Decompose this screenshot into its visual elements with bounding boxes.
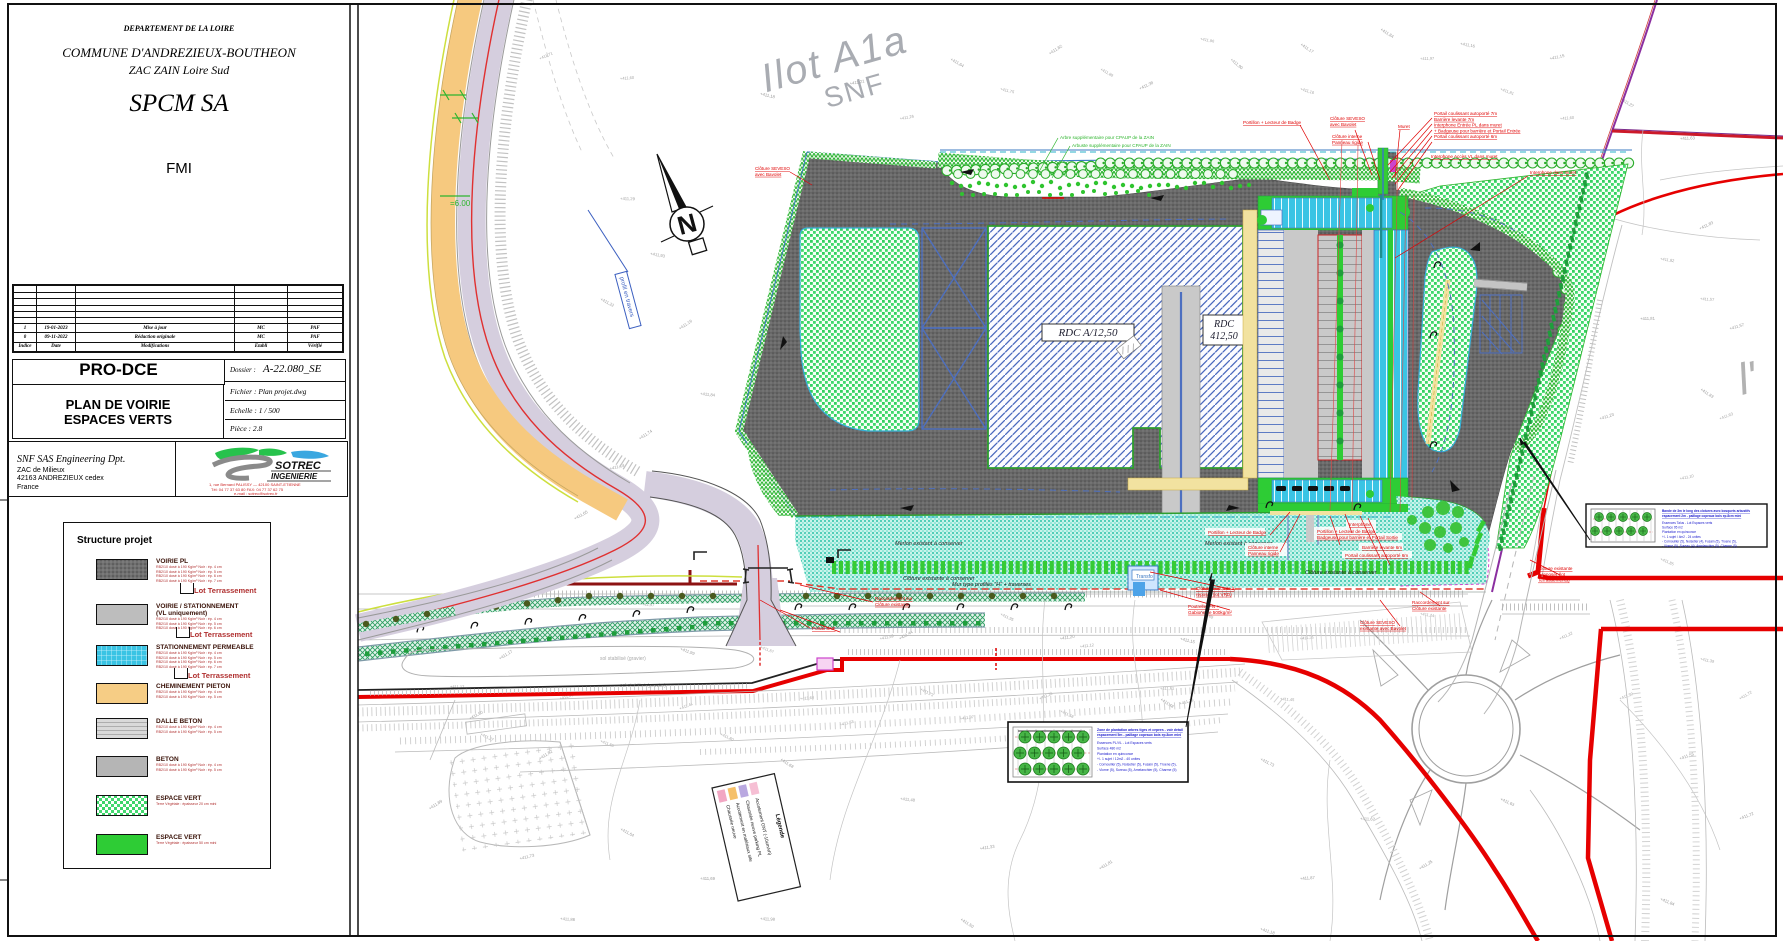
svg-text:+411,71: +411,71 xyxy=(538,50,554,61)
svg-text:Terrassements): Terrassements) xyxy=(1538,578,1570,583)
svg-text:+411,25: +411,25 xyxy=(1418,859,1434,871)
svg-text:+411,63: +411,63 xyxy=(1500,796,1516,807)
svg-text:Badgeuse pour barrière et Port: Badgeuse pour barrière et Portail Sortie xyxy=(1317,535,1398,540)
svg-text:SOTREC: SOTREC xyxy=(275,460,322,472)
svg-text:+411,89: +411,89 xyxy=(428,798,444,811)
svg-text:Barrière levante 7m: Barrière levante 7m xyxy=(1434,117,1474,122)
svg-text:+411,29: +411,29 xyxy=(1179,697,1195,706)
svg-text:+411,87: +411,87 xyxy=(1300,875,1316,881)
svg-text:+411,57: +411,57 xyxy=(1700,296,1715,302)
svg-text:+411,48: +411,48 xyxy=(900,796,916,803)
svg-text:Clôture existante: Clôture existante xyxy=(875,602,910,607)
svg-text:+411,69: +411,69 xyxy=(700,876,716,881)
svg-text:+411,20: +411,20 xyxy=(1059,634,1075,641)
svg-text:Transfo: Transfo xyxy=(1136,574,1153,580)
svg-text:+411,63: +411,63 xyxy=(839,719,855,727)
svg-text:+411,32: +411,32 xyxy=(1558,630,1574,641)
svg-text:Portillon + Lecteur de Badge: Portillon + Lecteur de Badge xyxy=(1243,120,1302,125)
svg-text:Surface 95 m2: Surface 95 m2 xyxy=(1662,526,1683,530)
svg-text:Raccordement sur: Raccordement sur xyxy=(1412,600,1450,605)
svg-text:+411,90: +411,90 xyxy=(1229,57,1244,71)
svg-text:Poutrelle IPN +: Poutrelle IPN + xyxy=(1188,604,1219,609)
svg-text:espacement 5m - paillage copea: espacement 5m - paillage copeaux bois ep… xyxy=(1097,733,1181,737)
svg-text:+411,24: +411,24 xyxy=(1420,611,1436,618)
svg-text:+411,81: +411,81 xyxy=(1098,859,1114,871)
svg-text:Interphone Entrée PL dans mure: Interphone Entrée PL dans muret xyxy=(1434,123,1502,128)
svg-text:Interphone Accès VL dans muret: Interphone Accès VL dans muret xyxy=(1431,154,1498,159)
svg-text:+411,68: +411,68 xyxy=(779,757,795,770)
svg-text:+411,48: +411,48 xyxy=(1159,697,1175,710)
svg-text:Essences PL/VL - Lot Espaces v: Essences PL/VL - Lot Espaces verts xyxy=(1097,741,1152,745)
svg-text:+411,59: +411,59 xyxy=(879,633,895,641)
svg-text:+411,64: +411,64 xyxy=(620,826,636,838)
svg-text:Surface 480 m2: Surface 480 m2 xyxy=(1097,746,1121,750)
svg-text:RDC A/12,50: RDC A/12,50 xyxy=(1057,327,1118,339)
svg-text:INGENIERIE: INGENIERIE xyxy=(271,472,318,481)
svg-text:+411,73: +411,73 xyxy=(1260,756,1276,768)
svg-text:sol stabilisé (gravier): sol stabilisé (gravier) xyxy=(600,656,646,662)
svg-text:RDC: RDC xyxy=(1213,319,1234,330)
svg-text:+411,33: +411,33 xyxy=(979,844,995,851)
svg-text:+411,82: +411,82 xyxy=(1048,43,1064,56)
svg-text:+411,27: +411,27 xyxy=(480,731,496,742)
svg-text:- Cornouiller (5), Noisetier (: - Cornouiller (5), Noisetier (4), Fusain… xyxy=(1662,539,1737,543)
svg-text:+411,86: +411,86 xyxy=(560,916,576,922)
svg-text:+411,63: +411,63 xyxy=(1680,135,1696,141)
svg-text:+411,97: +411,97 xyxy=(959,714,975,721)
svg-text:Gabions de 500kg/m²: Gabions de 500kg/m² xyxy=(1188,610,1232,615)
svg-text:+411,74: +411,74 xyxy=(638,428,654,441)
svg-text:- Viorne (5), Sureau (4), Amel: - Viorne (5), Sureau (4), Amelanchier (5… xyxy=(1662,544,1737,548)
svg-text:+411,15: +411,15 xyxy=(1549,53,1565,61)
svg-text:+411,81: +411,81 xyxy=(1500,86,1516,96)
svg-text:=6.00: =6.00 xyxy=(450,199,471,208)
svg-text:+411,17: +411,17 xyxy=(498,648,514,661)
svg-text:Arbre supplémentaire pour CPAU: Arbre supplémentaire pour CPAUP de la ZA… xyxy=(1060,135,1154,140)
svg-text:+411,39: +411,39 xyxy=(1700,656,1716,664)
svg-text:Clôture existante: Clôture existante xyxy=(1412,606,1447,611)
svg-text:+411,84: +411,84 xyxy=(1660,896,1676,907)
svg-text:Clôture SEVESO: Clôture SEVESO xyxy=(755,166,790,171)
svg-text:+411,64: +411,64 xyxy=(950,57,966,69)
svg-text:espacement 2m - paillage copea: espacement 2m - paillage copeaux bois ep… xyxy=(1662,514,1741,518)
svg-text:+411,81: +411,81 xyxy=(1640,316,1656,321)
svg-text:+411,29: +411,29 xyxy=(620,196,636,201)
svg-text:reposer (lot VRD): reposer (lot VRD) xyxy=(1196,592,1232,597)
svg-text:+411,57: +411,57 xyxy=(1729,322,1745,331)
svg-text:- Cornouiller (5), Noisetier (: - Cornouiller (5), Noisetier (5), Fusain… xyxy=(1097,763,1177,767)
svg-text:+411,15: +411,15 xyxy=(1180,636,1196,644)
svg-text:Portail coulissant autoporté 6: Portail coulissant autoporté 6m xyxy=(1434,134,1497,139)
svg-text:Essences Talus - Lot Espaces v: Essences Talus - Lot Espaces verts xyxy=(1662,521,1713,525)
svg-text:Interphone: Interphone xyxy=(1349,522,1371,527)
svg-text:profil en travers: profil en travers xyxy=(618,276,635,318)
svg-text:+411,50: +411,50 xyxy=(959,917,975,930)
svg-text:Muret: Muret xyxy=(1398,124,1410,129)
svg-text:Clôture SEVESO: Clôture SEVESO xyxy=(1330,116,1365,121)
svg-text:+411,18: +411,18 xyxy=(1260,926,1276,936)
svg-text:+411,16: +411,16 xyxy=(1460,41,1476,49)
svg-text:Clôture existante à conserver: Clôture existante à conserver xyxy=(1305,570,1378,576)
svg-text:Interphone dans muret: Interphone dans muret xyxy=(1530,170,1577,175)
svg-text:+411,96: +411,96 xyxy=(1200,36,1216,44)
svg-text:+411,89: +411,89 xyxy=(1100,67,1116,79)
svg-text:+411,17: +411,17 xyxy=(1299,42,1315,55)
svg-text:+411,84: +411,84 xyxy=(700,391,716,398)
svg-text:+411,97: +411,97 xyxy=(1420,56,1435,61)
svg-text:+411,60: +411,60 xyxy=(1560,115,1575,121)
svg-text:+411,23: +411,23 xyxy=(1599,412,1615,421)
svg-text:Bande de 3m le long des clotur: Bande de 3m le long des clotures avec bo… xyxy=(1662,509,1750,513)
svg-text:avec Bavolet: avec Bavolet xyxy=(1330,122,1357,127)
svg-text:Portail SNF: Portail SNF xyxy=(812,626,836,631)
svg-text:+/- 1 sujet / 12m2 - 40 unites: +/- 1 sujet / 12m2 - 40 unites xyxy=(1097,757,1140,761)
svg-text:+411,82: +411,82 xyxy=(1660,256,1676,263)
svg-text:Zone de plantation arbres tige: Zone de plantation arbres tiges et cepee… xyxy=(1097,728,1183,732)
svg-text:+411,93: +411,93 xyxy=(650,251,666,259)
svg-text:+411,12: +411,12 xyxy=(1079,642,1095,649)
svg-text:+411,73: +411,73 xyxy=(519,852,535,861)
svg-text:l': l' xyxy=(1733,352,1764,404)
svg-text:à reposer (lot: à reposer (lot xyxy=(1538,572,1566,577)
svg-text:Mur type profilés "H" + traver: Mur type profilés "H" + traverses xyxy=(952,582,1031,588)
svg-text:412,50: 412,50 xyxy=(1210,331,1238,342)
svg-text:+411,72: +411,72 xyxy=(1739,811,1755,821)
svg-text:+411,75: +411,75 xyxy=(1000,86,1016,94)
svg-text:+411,58: +411,58 xyxy=(1060,708,1076,719)
svg-text:Raccordement sur: Raccordement sur xyxy=(875,596,913,601)
svg-text:+411,16: +411,16 xyxy=(1300,86,1316,95)
svg-text:Panneau rigide: Panneau rigide xyxy=(1248,551,1279,556)
svg-text:+411,98: +411,98 xyxy=(760,916,776,922)
svg-text:+411,26: +411,26 xyxy=(899,113,915,121)
svg-text:avec Bavolet: avec Bavolet xyxy=(755,172,782,177)
svg-text:+411,65: +411,65 xyxy=(600,738,616,748)
svg-text:Clôture interne: Clôture interne xyxy=(1248,545,1279,550)
svg-text:+411,19: +411,19 xyxy=(678,318,694,331)
svg-text:+411,22: +411,22 xyxy=(600,296,616,308)
svg-text:e-mail : sotrec@sotrec.fr: e-mail : sotrec@sotrec.fr xyxy=(234,491,278,495)
svg-text:Clôture SEVESO: Clôture SEVESO xyxy=(1360,620,1395,625)
svg-text:+ Badgeuse pour barrière et Po: + Badgeuse pour barrière et Portail Entr… xyxy=(1434,128,1521,133)
svg-text:+411,99: +411,99 xyxy=(680,646,696,656)
svg-text:Portail coulissant autoporté 6: Portail coulissant autoporté 6m xyxy=(1345,553,1408,558)
svg-text:Arbuste supplémentaire pour CP: Arbuste supplémentaire pour CPAUP de la … xyxy=(1072,143,1171,148)
svg-text:+411,65: +411,65 xyxy=(573,509,589,521)
svg-text:+411,83: +411,83 xyxy=(1699,387,1715,400)
svg-text:+411,83: +411,83 xyxy=(1698,220,1714,231)
svg-text:+411,95: +411,95 xyxy=(1000,611,1016,622)
svg-text:Portillon + Lecteur de Badge: Portillon + Lecteur de Badge xyxy=(1208,530,1267,535)
svg-text:- Viorne (5), Sureau (5), Amel: - Viorne (5), Sureau (5), Amelanchier (5… xyxy=(1097,768,1176,772)
svg-text:+411,72: +411,72 xyxy=(1738,689,1754,701)
svg-text:+411,73: +411,73 xyxy=(920,686,936,697)
svg-text:+411,85: +411,85 xyxy=(1660,556,1676,566)
svg-text:+/- 1 sujet / 4m2 - 24 unites: +/- 1 sujet / 4m2 - 24 unites xyxy=(1662,535,1701,539)
svg-text:+411,63: +411,63 xyxy=(1719,411,1735,421)
svg-text:+411,38: +411,38 xyxy=(1138,80,1154,91)
svg-text:+411,84: +411,84 xyxy=(1379,27,1395,40)
svg-text:existante avec Bavolet: existante avec Bavolet xyxy=(1360,626,1407,631)
svg-text:+411,10: +411,10 xyxy=(1679,473,1695,481)
svg-text:+411,60: +411,60 xyxy=(620,75,635,81)
svg-text:Merlon existant à conserver: Merlon existant à conserver xyxy=(895,541,964,547)
svg-text:Plantation en quinconce: Plantation en quinconce xyxy=(1097,752,1133,756)
svg-text:Portail coulissant autoporté 7: Portail coulissant autoporté 7m xyxy=(1434,111,1497,116)
svg-text:Plantation en quinconce: Plantation en quinconce xyxy=(1662,530,1696,534)
